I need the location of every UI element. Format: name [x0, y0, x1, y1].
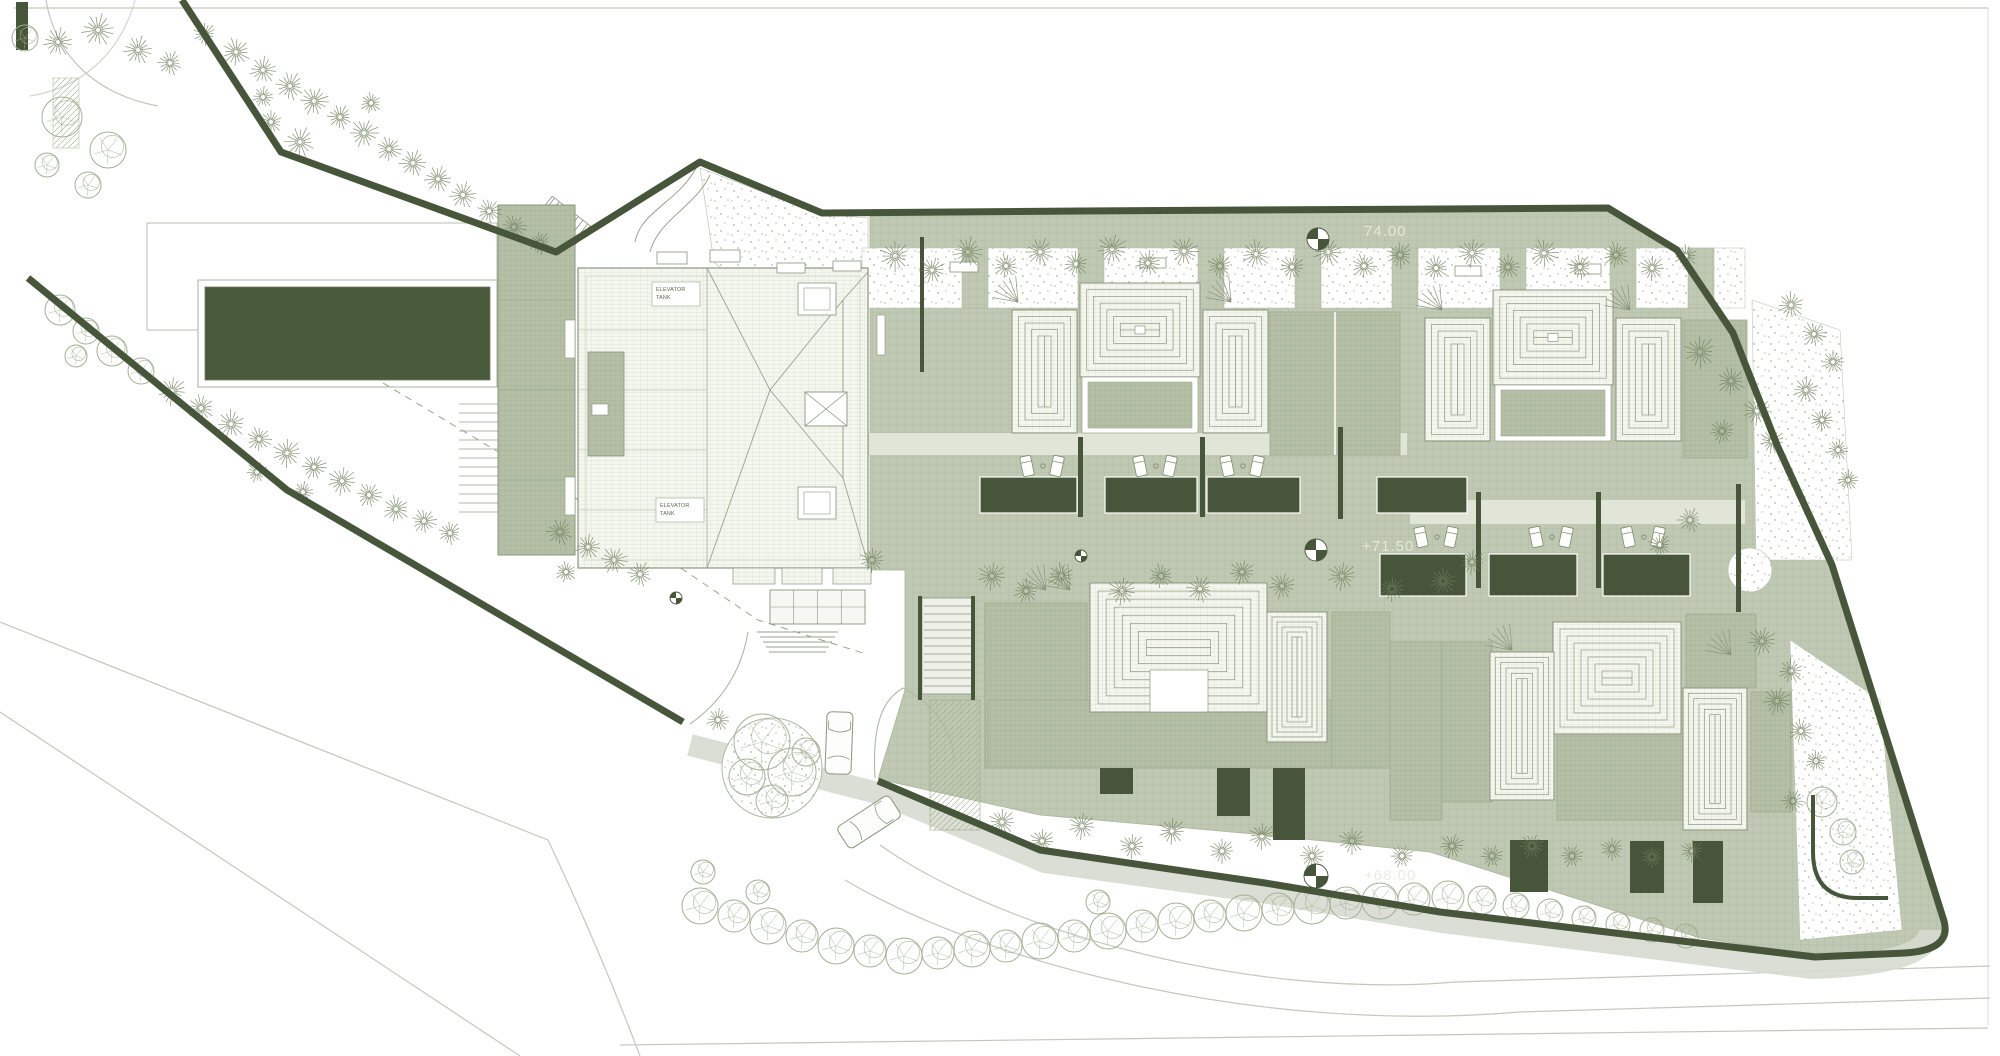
- pine-core: [197, 404, 205, 412]
- needle: [390, 141, 397, 148]
- roof-chip: [565, 477, 575, 515]
- needle: [98, 14, 102, 29]
- needle: [451, 535, 455, 541]
- garden-wall: [1596, 492, 1601, 588]
- needle: [566, 574, 567, 580]
- needle: [452, 532, 458, 533]
- branch: [78, 185, 88, 188]
- branch: [768, 915, 777, 926]
- pine-tree-icon: [412, 510, 436, 533]
- pine-tree-icon: [424, 166, 451, 192]
- branch: [108, 139, 117, 150]
- villa-roof: [1267, 612, 1327, 742]
- pine-tree-icon: [224, 38, 250, 66]
- label-text: TANK: [656, 295, 671, 301]
- needle: [140, 48, 152, 49]
- needle: [290, 74, 291, 84]
- branch: [926, 953, 938, 957]
- branch: [1414, 889, 1422, 899]
- villa-roof: [1490, 652, 1554, 800]
- roof-access-square: [798, 283, 836, 315]
- branch: [47, 165, 56, 168]
- needle: [288, 455, 291, 464]
- branch: [1107, 931, 1108, 945]
- branch: [904, 956, 918, 961]
- planter-bed: [1603, 554, 1690, 596]
- needle: [226, 51, 234, 52]
- needle: [361, 490, 368, 494]
- level-label: +71.50: [1362, 538, 1414, 555]
- branch: [1244, 902, 1253, 913]
- branch: [972, 949, 986, 954]
- needle: [355, 134, 363, 142]
- needle: [254, 427, 258, 437]
- needle: [1223, 852, 1230, 859]
- pine-tree-icon: [81, 14, 113, 45]
- branch: [1550, 904, 1556, 912]
- pine-tree-icon: [357, 484, 382, 507]
- needle: [414, 150, 418, 161]
- branch: [47, 157, 53, 165]
- entry-canopy: [733, 568, 775, 584]
- needle: [140, 45, 147, 49]
- needle: [462, 184, 463, 193]
- branch: [700, 895, 709, 906]
- v-roof-house: [1425, 318, 1490, 441]
- branch: [1176, 921, 1190, 926]
- branch: [1609, 924, 1618, 927]
- pine-tree-icon: [252, 86, 273, 106]
- green-roof-annex: [498, 205, 575, 555]
- benchmark-icon: [1307, 228, 1329, 250]
- needle: [295, 144, 299, 152]
- branch: [1098, 902, 1107, 905]
- circle-court: [1728, 548, 1772, 592]
- needle: [719, 711, 723, 718]
- branch: [1266, 909, 1278, 913]
- branch: [1162, 921, 1176, 925]
- porch-roof: [1501, 390, 1605, 436]
- planter-bed: [1105, 477, 1197, 513]
- round-tree-icon: [75, 172, 101, 198]
- bench: [1455, 266, 1481, 276]
- needle: [452, 528, 459, 532]
- needle: [1174, 832, 1181, 835]
- branch: [1006, 946, 1018, 950]
- branch: [1094, 931, 1108, 935]
- round-tree-icon: [1086, 890, 1110, 914]
- roof-lantern: [1548, 334, 1558, 342]
- pine-tree-icon: [1120, 834, 1143, 859]
- planter-bed: [1489, 554, 1577, 596]
- branch: [1243, 913, 1244, 927]
- branch: [1482, 891, 1489, 900]
- needle: [1032, 840, 1040, 841]
- needle: [994, 813, 1001, 820]
- branch: [1584, 910, 1590, 918]
- bench: [710, 250, 740, 262]
- planter-bed: [1377, 477, 1467, 513]
- needle: [1042, 829, 1043, 839]
- branch: [734, 906, 742, 916]
- site-plan-drawing: 74.00+71.50+68.00 ELEVATORTANKELEVATORTA…: [0, 0, 2000, 1056]
- pine-tree-icon: [706, 708, 729, 730]
- branch: [790, 936, 802, 940]
- context-wall-stub: [16, 2, 28, 50]
- needle: [353, 129, 362, 133]
- needle: [288, 143, 298, 147]
- street-se-edge1: [1455, 966, 1990, 982]
- level-label: 74.00: [1364, 223, 1407, 240]
- pine-tree-icon: [378, 137, 402, 161]
- needle: [223, 425, 230, 432]
- branch: [1130, 926, 1142, 930]
- pine-core: [134, 46, 143, 55]
- needle: [262, 99, 263, 105]
- pine-tree-icon: [327, 105, 351, 129]
- lightwell: [1100, 768, 1133, 794]
- branch: [1244, 913, 1258, 918]
- road-curve-nw2: [30, 0, 135, 96]
- v-roof-house: [1012, 310, 1077, 433]
- needle: [288, 442, 292, 451]
- needle: [440, 175, 447, 179]
- street-se-edge2: [1520, 998, 1990, 1012]
- branch: [1062, 936, 1074, 940]
- needle: [1174, 831, 1184, 832]
- needle: [314, 91, 315, 99]
- villa-court-notch: [1150, 670, 1208, 712]
- needle: [1790, 291, 1791, 303]
- branch: [1089, 902, 1098, 905]
- label-text: ELEVATOR: [656, 287, 685, 293]
- branch: [1506, 906, 1516, 909]
- car: [825, 712, 853, 775]
- needle: [480, 211, 487, 212]
- pine-tree-icon: [250, 56, 276, 81]
- needle: [642, 574, 649, 575]
- needle: [235, 54, 236, 66]
- round-tree-icon: [1194, 900, 1226, 932]
- needle: [396, 511, 397, 519]
- garden-wall: [1338, 427, 1343, 519]
- branch: [88, 185, 98, 189]
- round-tree-icon: [750, 908, 786, 944]
- needle: [238, 52, 248, 53]
- branch: [703, 864, 709, 872]
- flat-roof-slab: [1442, 642, 1492, 802]
- road-sw-edge2: [0, 712, 520, 1056]
- flat-roof-slab: [1390, 642, 1442, 820]
- lightwell: [1510, 840, 1548, 892]
- needle: [316, 463, 326, 466]
- needle: [174, 391, 185, 392]
- branch: [1643, 930, 1652, 933]
- pine-tree-icon: [557, 561, 575, 582]
- pine-core: [93, 25, 103, 35]
- label-box: [656, 498, 704, 522]
- garden-ne: [1752, 300, 1852, 560]
- branch: [890, 956, 904, 960]
- branch: [767, 926, 768, 940]
- branch: [1414, 899, 1426, 903]
- pine-tree-icon: [123, 36, 152, 64]
- paving-pier: [1295, 248, 1321, 308]
- needle: [342, 467, 344, 479]
- needle: [248, 434, 257, 438]
- needle: [463, 197, 464, 207]
- needle: [437, 168, 438, 177]
- garden-wall: [1736, 484, 1741, 612]
- needle: [1171, 833, 1172, 845]
- branch: [76, 331, 86, 334]
- round-tree-icon: [1468, 886, 1496, 914]
- round-tree-icon: [691, 860, 715, 884]
- needle: [237, 43, 241, 51]
- round-tree-icon: [922, 937, 954, 969]
- needle: [708, 719, 716, 720]
- pine-tree-icon: [384, 495, 407, 521]
- branch: [971, 949, 972, 963]
- needle: [424, 179, 436, 180]
- branch: [1006, 936, 1014, 946]
- branch: [68, 356, 76, 358]
- needle: [340, 107, 341, 115]
- needle: [390, 150, 396, 157]
- bottom-frame-line: [620, 1028, 1988, 1045]
- roof-access-square: [798, 487, 836, 519]
- needle: [365, 125, 372, 132]
- needle: [399, 163, 411, 164]
- label-text: ELEVATOR: [660, 503, 689, 509]
- pine-tree-icon: [275, 73, 302, 101]
- needle: [1211, 852, 1220, 856]
- branch: [1176, 910, 1185, 921]
- round-tree-icon: [718, 900, 750, 932]
- round-tree-icon: [854, 935, 886, 967]
- villa-roof: [1683, 688, 1747, 830]
- bench: [657, 252, 687, 264]
- branch: [76, 356, 84, 359]
- pine-tree-icon: [438, 522, 458, 545]
- swimming-pool: [205, 287, 490, 380]
- branch: [1278, 909, 1290, 913]
- entry-canopy: [782, 568, 822, 584]
- needle: [1084, 826, 1094, 827]
- roof-lantern: [1135, 326, 1145, 334]
- needle: [262, 72, 263, 80]
- needle: [367, 497, 368, 505]
- needle: [316, 468, 324, 472]
- branch: [686, 906, 700, 910]
- needle: [232, 412, 236, 422]
- needle: [288, 88, 289, 99]
- needle: [441, 533, 448, 534]
- branch: [870, 941, 878, 951]
- branch: [1098, 894, 1104, 902]
- needle: [226, 413, 230, 422]
- garden-wall: [918, 596, 922, 700]
- round-tree-icon: [1158, 903, 1194, 939]
- branch: [108, 150, 122, 155]
- lightwell: [1273, 768, 1305, 840]
- equipment-label: ELEVATORTANK: [656, 498, 704, 522]
- branch: [802, 926, 810, 936]
- car: [836, 794, 902, 850]
- needle: [423, 510, 424, 519]
- needle: [639, 576, 640, 585]
- benchmark-icon: [1304, 864, 1328, 888]
- round-tree-icon: [1022, 923, 1058, 959]
- branch: [1142, 926, 1154, 930]
- needle: [265, 70, 276, 71]
- needle: [230, 409, 231, 422]
- lightwell: [1630, 841, 1664, 893]
- branch: [870, 951, 882, 955]
- needle: [1214, 843, 1220, 849]
- branch: [1026, 941, 1040, 945]
- needle: [1223, 842, 1231, 850]
- branch: [1040, 930, 1049, 941]
- needle: [330, 479, 340, 480]
- entry-canopy: [833, 568, 871, 584]
- main-building: [578, 268, 868, 568]
- branch: [1230, 913, 1244, 917]
- branch: [1040, 941, 1054, 946]
- branch: [768, 926, 782, 931]
- branch: [903, 956, 904, 970]
- pine-core: [286, 82, 295, 91]
- pine-tree-icon: [362, 92, 380, 113]
- branch: [1074, 926, 1082, 936]
- needle: [1071, 825, 1080, 826]
- road-sw-edge1: [0, 622, 548, 840]
- branch: [1575, 918, 1584, 921]
- branch: [1618, 916, 1624, 924]
- needle: [171, 65, 175, 75]
- pine-tree-icon: [273, 439, 299, 468]
- branch: [699, 906, 700, 920]
- pyramid-roof-house: [1493, 290, 1613, 441]
- needle: [440, 178, 451, 179]
- pine-core: [338, 477, 347, 486]
- label-text: TANK: [660, 511, 675, 517]
- roof-chip: [565, 320, 575, 358]
- pine-core: [365, 491, 373, 499]
- garden-wall: [1078, 437, 1083, 517]
- branch: [938, 943, 946, 953]
- needle: [172, 377, 173, 389]
- pine-tree-icon: [350, 120, 379, 147]
- gravel-circle-dots: [1728, 548, 1772, 592]
- needle: [292, 86, 300, 87]
- branch: [700, 906, 714, 911]
- needle: [316, 101, 329, 102]
- needle: [138, 52, 139, 63]
- roof-chip: [592, 404, 608, 415]
- branch: [1471, 900, 1482, 903]
- pine-tree-icon: [43, 27, 71, 54]
- needle: [236, 39, 237, 50]
- round-tree-icon: [1090, 913, 1126, 949]
- branch: [38, 165, 47, 168]
- garden-wall: [1200, 437, 1205, 517]
- needle: [260, 440, 266, 447]
- branch: [694, 872, 703, 875]
- branch: [858, 951, 870, 955]
- benchmark-icon: [1075, 550, 1087, 562]
- round-tree-icon: [1503, 893, 1529, 919]
- needle: [98, 32, 100, 44]
- porch-roof: [1088, 382, 1192, 428]
- needle: [1313, 845, 1317, 854]
- bench: [833, 261, 861, 271]
- needle: [344, 481, 355, 482]
- branch: [1142, 916, 1150, 926]
- flat-roof-slab: [1557, 736, 1683, 820]
- needle: [717, 722, 718, 728]
- needle: [1044, 841, 1053, 842]
- branch: [1448, 897, 1460, 901]
- flat-roof-slab: [1751, 692, 1791, 812]
- branch: [835, 946, 836, 960]
- branch: [1108, 931, 1122, 936]
- planter-bed: [1207, 477, 1300, 513]
- benchmark-icon: [670, 592, 682, 604]
- branch: [76, 349, 81, 356]
- flat-roof-slab: [1332, 612, 1390, 768]
- needle: [251, 69, 261, 70]
- needle: [1161, 830, 1170, 831]
- garden-wall: [1476, 492, 1481, 588]
- entry-steps: [757, 632, 838, 652]
- planter-bed: [980, 477, 1077, 513]
- branch: [1402, 899, 1414, 903]
- needle: [339, 119, 340, 128]
- level-label: +68.00: [1364, 867, 1416, 884]
- branch: [836, 946, 850, 951]
- needle: [302, 466, 312, 467]
- pine-tree-icon: [302, 456, 327, 478]
- bench: [950, 262, 978, 272]
- needle: [292, 134, 298, 141]
- needle: [313, 469, 314, 477]
- branch: [107, 150, 108, 164]
- branch: [758, 892, 767, 895]
- flat-roof-slab: [1686, 614, 1756, 688]
- round-tree-icon: [65, 345, 87, 367]
- needle: [233, 425, 242, 428]
- branch: [1039, 941, 1040, 955]
- branch: [749, 892, 758, 895]
- equipment-label: ELEVATORTANK: [652, 282, 700, 306]
- branch: [1210, 916, 1222, 920]
- needle: [378, 144, 387, 148]
- branch: [100, 351, 112, 354]
- needle: [369, 486, 370, 493]
- branch: [1618, 924, 1627, 927]
- car-body: [836, 794, 902, 850]
- needle: [300, 100, 312, 101]
- branch: [802, 936, 814, 940]
- needle: [313, 103, 314, 113]
- branch: [1108, 920, 1117, 931]
- garden-wall: [971, 596, 975, 700]
- branch: [1652, 930, 1661, 933]
- branch: [822, 946, 836, 950]
- planter-bed: [1380, 554, 1466, 596]
- lightwell: [1217, 768, 1250, 816]
